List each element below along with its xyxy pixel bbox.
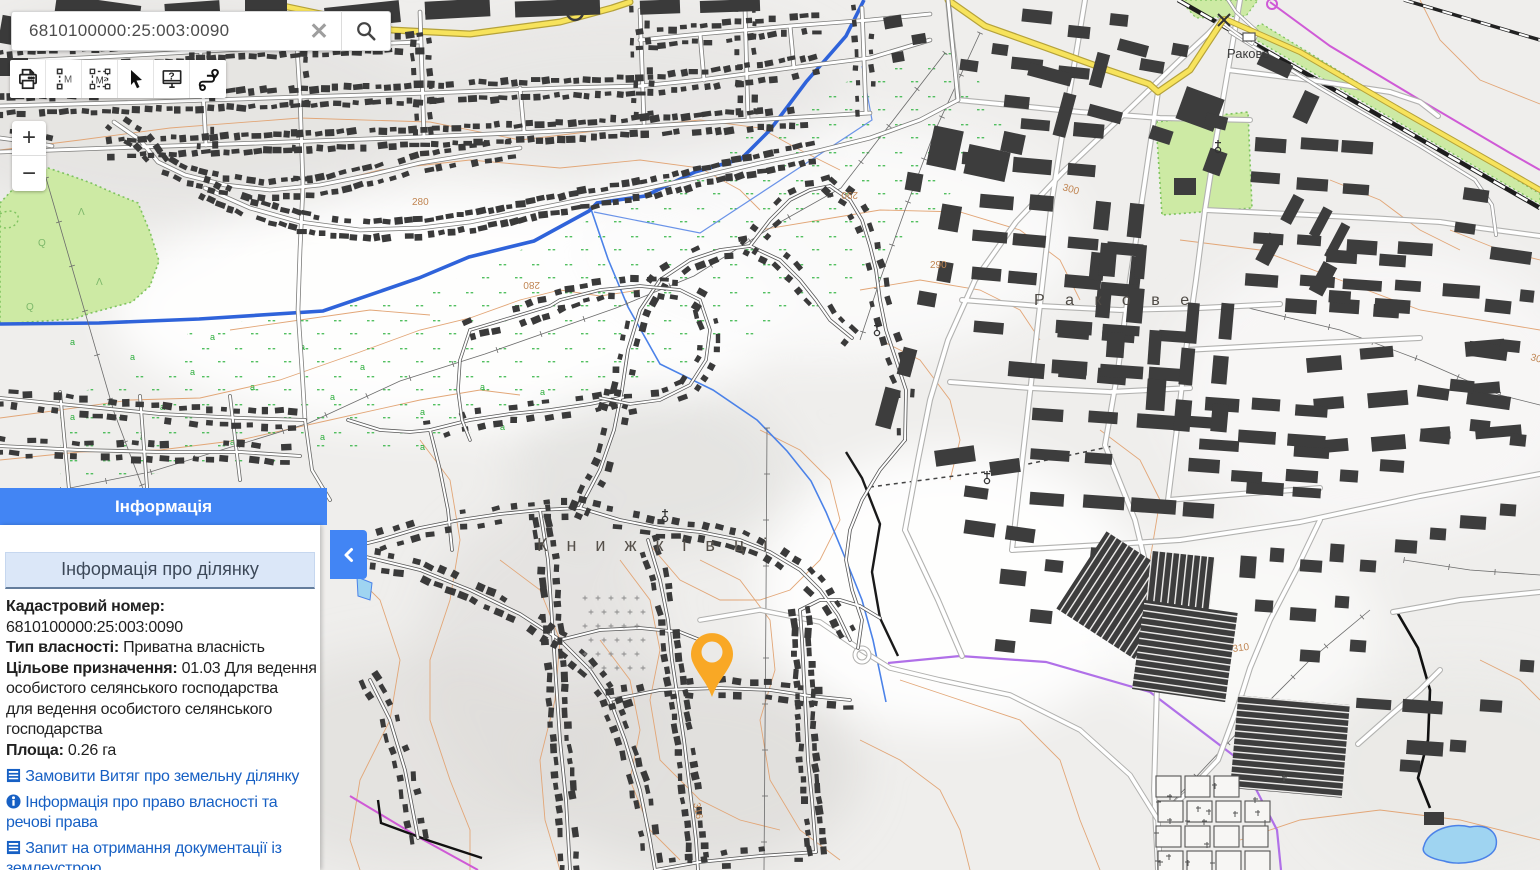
svg-text:Λ: Λ [78, 207, 85, 218]
svg-text:?: ? [168, 72, 174, 83]
svg-text:290: 290 [841, 189, 858, 200]
svg-text:a: a [480, 382, 485, 392]
svg-text:a: a [70, 412, 75, 422]
svg-text:a: a [540, 387, 545, 397]
svg-text:280: 280 [412, 197, 429, 208]
svg-text:a: a [210, 332, 215, 342]
svg-text:280: 280 [523, 279, 540, 290]
svg-text:Ракове: Ракове [1227, 46, 1270, 61]
svg-text:Q: Q [38, 238, 46, 249]
svg-text:M: M [64, 74, 72, 85]
svg-text:a: a [190, 367, 195, 377]
svg-text:a: a [70, 337, 75, 347]
svg-text:a: a [360, 362, 365, 372]
svg-text:a: a [320, 432, 325, 442]
svg-text:a: a [420, 407, 425, 417]
svg-text:Р а к о в е: Р а к о в е [1034, 292, 1197, 309]
svg-text:a: a [330, 392, 335, 402]
svg-text:290: 290 [930, 260, 947, 271]
svg-text:Λ: Λ [96, 277, 103, 288]
svg-text:a: a [250, 382, 255, 392]
svg-text:a: a [130, 352, 135, 362]
svg-text:a: a [420, 442, 425, 452]
svg-text:M²: M² [95, 75, 107, 86]
svg-text:Q: Q [26, 302, 34, 313]
svg-text:К н и ж к і в ц і: К н и ж к і в ц і [537, 535, 774, 555]
